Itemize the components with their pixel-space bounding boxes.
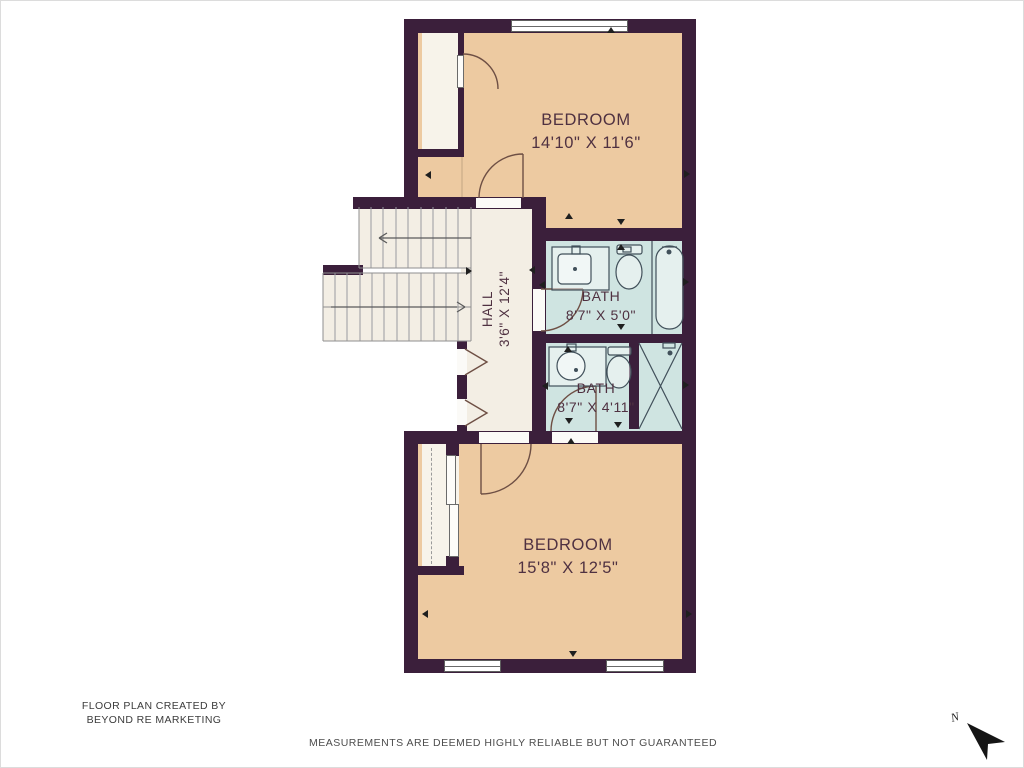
room-name: BEDROOM	[531, 109, 641, 132]
floor-plan-page: BEDROOM 14'10" X 11'6" HALL 3'6" X 12'4"…	[0, 0, 1024, 768]
room-dims: 8'7" X 4'11"	[557, 398, 635, 417]
room-name: BATH	[557, 379, 635, 398]
room-name: HALL	[479, 271, 496, 347]
room-name: BATH	[566, 287, 636, 306]
stair-treads	[323, 207, 471, 341]
shower-icon	[639, 343, 682, 429]
toilet-icon	[608, 347, 631, 355]
credit-line-2: BEYOND RE MARKETING	[82, 713, 226, 727]
room-dims: 8'7" X 5'0"	[566, 306, 636, 325]
label-bedroom-top: BEDROOM 14'10" X 11'6"	[531, 109, 641, 155]
credit-text: FLOOR PLAN CREATED BY BEYOND RE MARKETIN…	[82, 699, 226, 727]
label-bath-lower: BATH 8'7" X 4'11"	[557, 379, 635, 417]
north-arrow-icon	[967, 723, 1005, 760]
label-bedroom-bottom: BEDROOM 15'8" X 12'5"	[517, 534, 618, 580]
room-name: BEDROOM	[517, 534, 618, 557]
room-dims: 15'8" X 12'5"	[517, 557, 618, 580]
bathtub-icon	[656, 246, 683, 329]
plan-vector-overlay	[1, 1, 1024, 768]
label-hall: HALL 3'6" X 12'4"	[479, 271, 513, 347]
sink-icon	[557, 352, 585, 380]
disclaimer-text: MEASUREMENTS ARE DEEMED HIGHLY RELIABLE …	[309, 737, 717, 749]
label-bath-upper: BATH 8'7" X 5'0"	[566, 287, 636, 325]
credit-line-1: FLOOR PLAN CREATED BY	[82, 699, 226, 713]
room-dims: 14'10" X 11'6"	[531, 132, 641, 155]
room-dims: 3'6" X 12'4"	[496, 271, 513, 347]
